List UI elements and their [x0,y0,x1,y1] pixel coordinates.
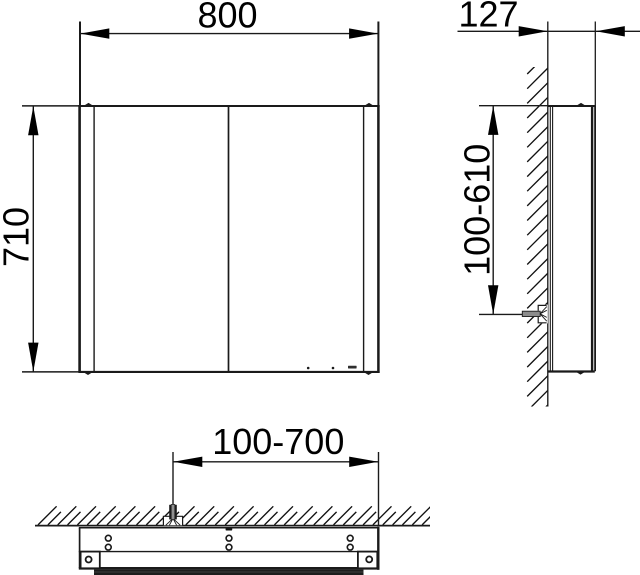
svg-text:100-700: 100-700 [212,421,344,462]
svg-text:710: 710 [0,207,36,267]
svg-text:127: 127 [458,0,518,34]
svg-text:800: 800 [197,0,257,36]
svg-text:100-610: 100-610 [457,144,498,276]
